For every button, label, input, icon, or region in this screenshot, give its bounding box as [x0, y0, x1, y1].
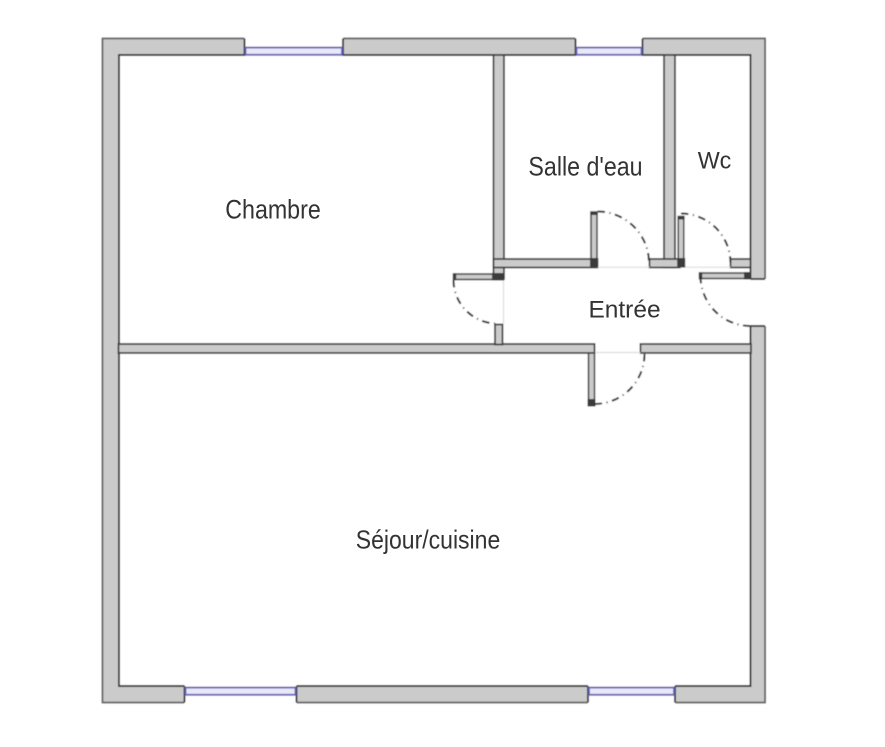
svg-text:Chambre: Chambre [225, 195, 320, 225]
svg-text:Wc: Wc [698, 148, 732, 174]
svg-text:Salle d'eau: Salle d'eau [528, 152, 642, 182]
svg-text:Séjour/cuisine: Séjour/cuisine [356, 526, 501, 555]
svg-text:Entrée: Entrée [588, 297, 660, 324]
